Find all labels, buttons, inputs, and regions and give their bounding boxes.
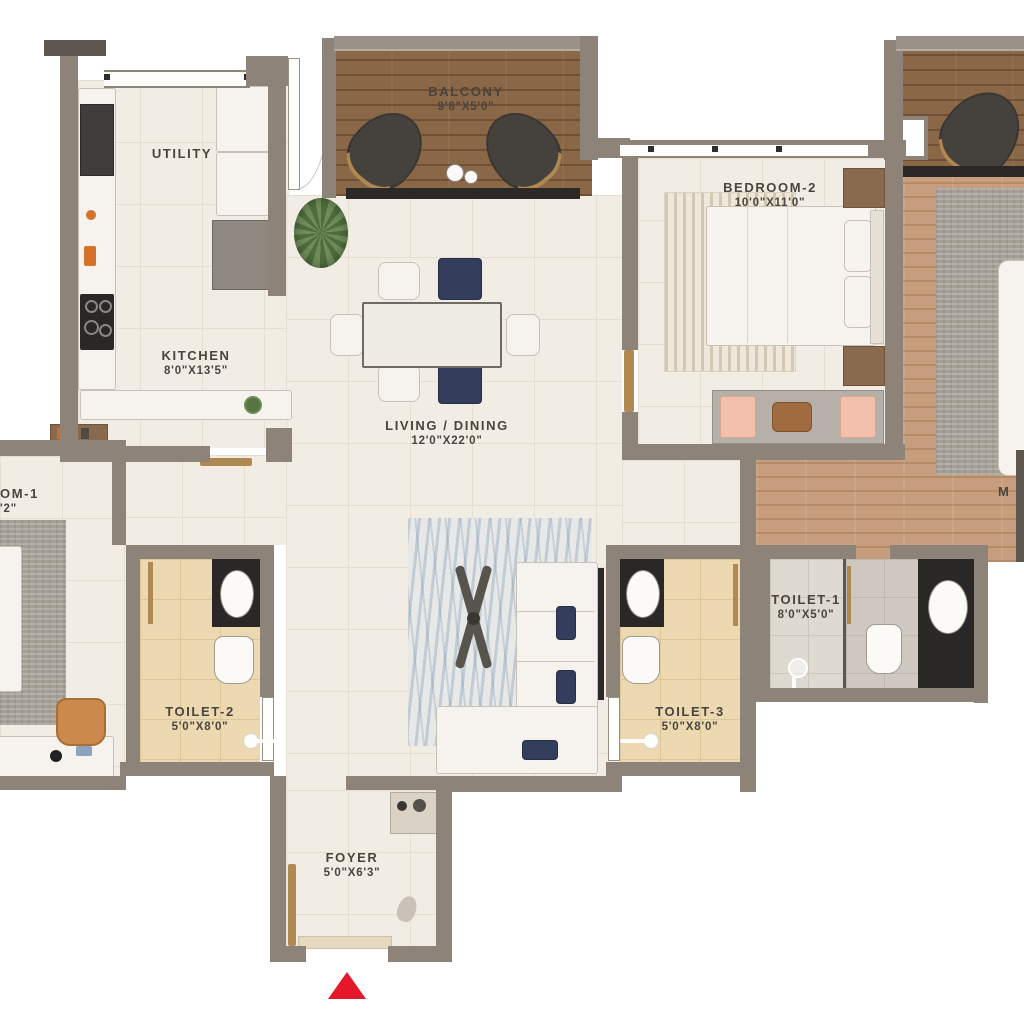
window-tick: [712, 146, 718, 152]
toilet3-door-leaf: [608, 697, 620, 761]
toilet3-wc: [622, 636, 660, 684]
kitchen-accessory: [86, 210, 96, 220]
floor-corridor: [120, 455, 286, 545]
wall: [622, 412, 638, 460]
balcony-table: [446, 164, 464, 182]
wall: [638, 444, 905, 460]
wall: [606, 559, 620, 697]
counter-plant-icon: [244, 396, 262, 414]
room-dims: 9'8"X5'0": [428, 101, 503, 113]
room-dims: 5'0"X8'0": [655, 721, 725, 733]
balcony-table: [464, 170, 478, 184]
window-tick: [648, 146, 654, 152]
room-name: BALCONY: [428, 84, 503, 99]
wall: [606, 545, 756, 559]
toilet1-wc: [866, 624, 902, 674]
wall: [885, 140, 903, 460]
entrance-arrow-icon: [328, 972, 366, 999]
wall: [270, 776, 286, 962]
room-label-utility: UTILITY: [152, 146, 212, 161]
shower-partition: [843, 559, 846, 688]
floor-plan: BALCONY 9'8"X5'0" UTILITY KITCHEN 8'0"X1…: [0, 0, 1024, 1024]
window-tick: [104, 74, 110, 80]
window-tick: [776, 146, 782, 152]
room-dims: 10'0"X11'0": [723, 197, 817, 209]
room-name: LIVING / DINING: [385, 418, 509, 433]
sofa-pillow: [522, 740, 558, 760]
burner-icon: [99, 300, 112, 313]
dining-chair-navy: [438, 362, 482, 404]
duvet-fold: [787, 207, 788, 343]
room-name: UTILITY: [152, 146, 212, 161]
window: [104, 70, 250, 88]
room-label-foyer: FOYER 5'0"X6'3": [324, 850, 381, 879]
wall: [270, 946, 306, 962]
door-handle-icon: [644, 734, 658, 748]
desk-lamp: [50, 750, 62, 762]
towel-rail: [847, 566, 851, 624]
toilet2-sink: [220, 570, 254, 618]
wall: [60, 56, 78, 448]
entry-mat: [298, 936, 392, 949]
room-name: TOILET-2: [165, 704, 235, 719]
room-label-toilet1: TOILET-1 8'0"X5'0": [771, 592, 841, 621]
shower-icon: [788, 658, 808, 678]
coffee-table-hub: [467, 612, 480, 625]
wall: [126, 559, 140, 762]
wall: [606, 762, 756, 776]
room-name: BEDROOM-2: [723, 180, 817, 195]
foyer-console: [390, 792, 438, 834]
wall: [756, 688, 988, 702]
master-bed-partial: [998, 260, 1024, 476]
room-label-bedroom2: BEDROOM-2 10'0"X11'0": [723, 180, 817, 209]
dining-chair-navy: [438, 258, 482, 300]
room-label-toilet3: TOILET-3 5'0"X8'0": [655, 704, 725, 733]
door-handle-icon: [256, 739, 282, 743]
dining-table: [362, 302, 502, 368]
toilet2-door-leaf: [262, 697, 274, 761]
door-handle-icon: [620, 739, 646, 743]
shelf-book: [81, 428, 89, 439]
room-name: M: [998, 484, 1010, 499]
fridge: [80, 104, 114, 176]
balcony-sliding-door: [346, 188, 580, 199]
cooktop: [80, 294, 114, 350]
sofa-seam: [517, 661, 595, 662]
coffee-table: [446, 564, 500, 672]
floor-living-ext: [622, 460, 740, 548]
room-dims: 12'0"X22'0": [385, 435, 509, 447]
wall: [974, 545, 988, 703]
wall: [756, 545, 856, 559]
towel-rail: [733, 564, 738, 626]
toilet3-sink: [626, 570, 660, 618]
balcony2-sliding-door: [902, 166, 1024, 177]
room-name: FOYER: [324, 850, 381, 865]
dining-chair-white: [378, 364, 420, 402]
room-label-toilet2: TOILET-2 5'0"X8'0": [165, 704, 235, 733]
wall: [742, 559, 756, 762]
wall: [268, 86, 286, 296]
wall: [60, 446, 210, 462]
utility-washer: [212, 220, 272, 290]
console-decor: [397, 801, 407, 811]
room-label-living: LIVING / DINING 12'0"X22'0": [385, 418, 509, 447]
balcony-rail: [334, 36, 592, 51]
wall: [120, 762, 274, 776]
room-label-bedroom1-cut: OM-1 '2": [0, 486, 39, 515]
bedroom2-door-leaf: [624, 350, 634, 412]
room-name: KITCHEN: [162, 348, 231, 363]
room-dims: 5'0"X6'3": [324, 867, 381, 879]
bed-headboard: [870, 210, 884, 344]
tv-unit: [598, 568, 604, 700]
room-label-kitchen: KITCHEN 8'0"X13'5": [162, 348, 231, 377]
burner-icon: [84, 320, 99, 335]
bed-pillow: [844, 220, 872, 272]
dining-chair-white: [330, 314, 364, 356]
nightstand: [843, 168, 885, 208]
wall: [436, 776, 452, 962]
sofa-pillow: [556, 606, 576, 640]
room-name: TOILET-3: [655, 704, 725, 719]
room-dims: '2": [0, 503, 39, 515]
wall: [756, 559, 770, 689]
bench-pillow: [720, 396, 756, 438]
master-window: [1016, 450, 1024, 562]
sofa-pillow: [556, 670, 576, 704]
desk-chair: [56, 698, 106, 746]
burner-icon: [99, 324, 112, 337]
wall: [266, 428, 292, 462]
room-name: OM-1: [0, 486, 39, 501]
kitchen-accessory: [84, 246, 96, 266]
burner-icon: [85, 300, 98, 313]
room-dims: 5'0"X8'0": [165, 721, 235, 733]
bedroom2-window: [620, 143, 868, 158]
wall: [884, 40, 903, 142]
sofa-bottom: [436, 706, 598, 774]
nightstand: [843, 346, 885, 386]
dining-chair-white: [506, 314, 540, 356]
wall: [388, 946, 452, 962]
balcony2-rail: [896, 36, 1024, 51]
wall: [112, 456, 126, 545]
wall: [246, 56, 288, 86]
console-decor: [413, 799, 426, 812]
wall: [0, 776, 126, 790]
bench-tray: [772, 402, 812, 432]
wall: [622, 158, 638, 350]
wall: [260, 559, 274, 697]
room-label-master-cut: M: [998, 484, 1010, 499]
wall: [436, 776, 622, 792]
duvet-fold: [747, 207, 748, 343]
bed-pillow: [844, 276, 872, 328]
toilet1-sink: [928, 580, 968, 634]
dining-chair-white: [378, 262, 420, 300]
bedroom1-bed-partial: [0, 546, 22, 692]
utility-cabinet: [216, 86, 270, 152]
desk-item: [76, 746, 92, 756]
bench-pillow: [840, 396, 876, 438]
entry-door-leaf: [288, 864, 296, 946]
wall: [44, 40, 106, 56]
towel-rail: [148, 562, 153, 624]
wall: [126, 545, 274, 559]
room-label-balcony: BALCONY 9'8"X5'0": [428, 84, 503, 113]
utility-cabinet: [216, 152, 270, 216]
room-name: TOILET-1: [771, 592, 841, 607]
wall: [322, 38, 336, 198]
toilet2-wc: [214, 636, 254, 684]
room-dims: 8'0"X5'0": [771, 609, 841, 621]
room-dims: 8'0"X13'5": [162, 365, 231, 377]
plant-icon: [294, 198, 348, 268]
